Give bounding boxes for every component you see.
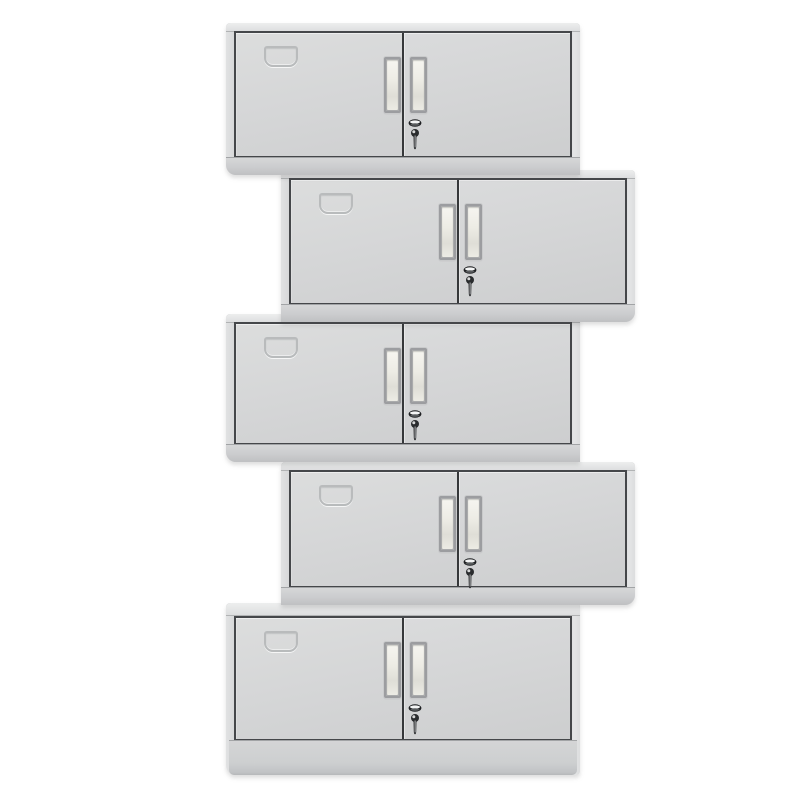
label-card-holder-icon [264,46,298,67]
cabinet-5 [226,603,580,775]
handle-slot [387,60,398,110]
cabinet-door-frame [289,470,627,588]
label-card-holder-icon [264,631,298,652]
cabinet-bottom-edge [229,740,577,775]
lock-with-key-icon [463,266,477,308]
right-door [458,472,625,586]
right-door-handle-icon [410,57,427,113]
left-door-handle-icon [439,496,456,552]
left-door-handle-icon [384,57,401,113]
right-door-handle-icon [410,348,427,404]
lock-with-key-icon [408,410,422,452]
left-door [236,618,403,739]
cabinet-bottom-edge [281,304,635,322]
handle-slot [413,60,424,110]
left-door [236,324,403,443]
cabinet-2 [281,170,635,322]
right-door-handle-icon [465,204,482,260]
cabinet-door-frame [234,322,572,445]
right-door [403,618,570,739]
cabinet-door-frame [289,178,627,305]
right-door [458,180,625,303]
handle-slot [387,645,398,695]
right-door [403,33,570,156]
cabinet-3 [226,314,580,462]
left-door-handle-icon [439,204,456,260]
door-gap-line [457,472,459,586]
lock-with-key-icon [408,704,422,746]
label-card-holder-icon [319,193,353,214]
left-door-handle-icon [384,348,401,404]
right-door [403,324,570,443]
handle-slot [468,499,479,549]
door-gap-line [457,180,459,303]
cabinet-4 [281,462,635,605]
handle-slot [413,645,424,695]
left-door [291,180,458,303]
left-door [291,472,458,586]
product-image [0,0,800,800]
door-gap-line [402,324,404,443]
handle-slot [387,351,398,401]
right-door-handle-icon [410,642,427,698]
handle-slot [413,351,424,401]
handle-slot [442,207,453,257]
label-card-holder-icon [319,485,353,506]
right-door-handle-icon [465,496,482,552]
lock-with-key-icon [408,119,422,161]
left-door [236,33,403,156]
handle-slot [442,499,453,549]
lock-with-key-icon [463,558,477,600]
cabinet-1 [226,23,580,175]
cabinet-bottom-edge [226,444,580,462]
cabinet-bottom-edge [226,157,580,175]
door-gap-line [402,33,404,156]
door-gap-line [402,618,404,739]
left-door-handle-icon [384,642,401,698]
cabinet-door-frame [234,31,572,158]
cabinet-door-frame [234,616,572,741]
label-card-holder-icon [264,337,298,358]
handle-slot [468,207,479,257]
cabinet-bottom-edge [281,587,635,605]
